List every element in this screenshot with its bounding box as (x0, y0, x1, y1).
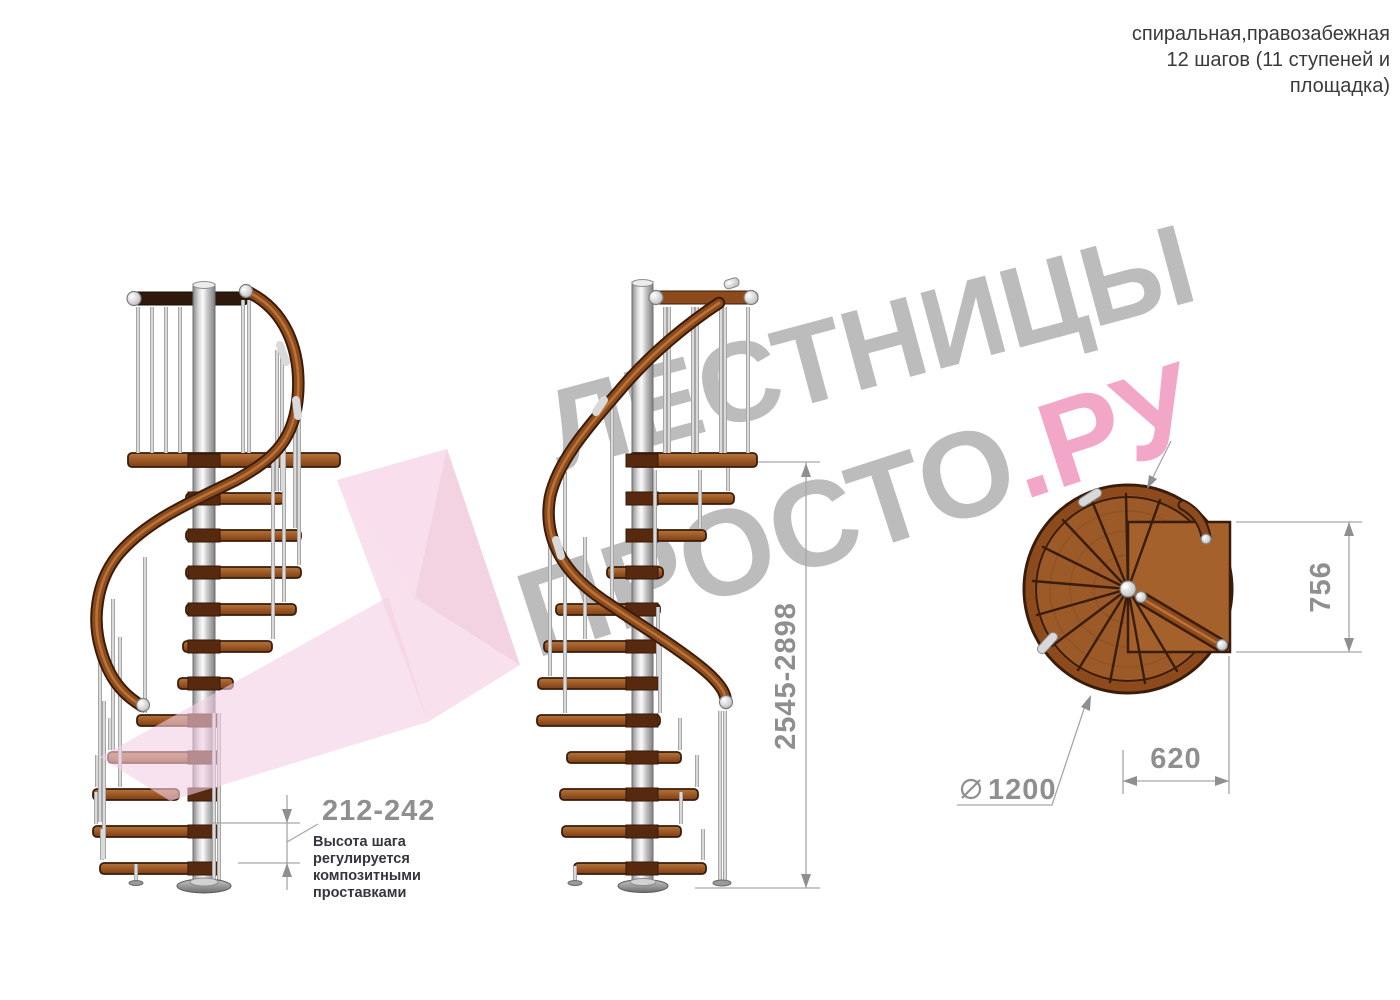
step-height-value: 212-242 (322, 795, 435, 827)
title-block: спиральная,правозабежная 12 шагов (11 ст… (1132, 23, 1390, 97)
watermark-arrow (100, 449, 520, 801)
dimension-landing-depth: 756 (1236, 522, 1362, 652)
title-line-1: спиральная,правозабежная (1132, 23, 1390, 45)
total-height-value: 2545-2898 (770, 602, 802, 750)
staircase-technical-drawing: ЛЕСТНИЦЫ ПРОСТО.РУ (0, 0, 1400, 1000)
guard-rail (128, 292, 249, 305)
staircase-top-view (1024, 485, 1232, 693)
dimension-step-height: 212-242 Высота шага регулируется компози… (212, 795, 435, 901)
diameter-icon (962, 780, 980, 798)
title-line-3: площадка) (1290, 75, 1390, 97)
staircase-side-view-left (93, 282, 340, 894)
step-height-note-3: композитными (313, 868, 421, 884)
title-line-2: 12 шагов (11 ступеней и (1166, 49, 1390, 71)
step-height-note-4: проставками (313, 885, 406, 901)
diameter-value: 1200 (988, 774, 1057, 806)
center-pole-hub (1120, 581, 1136, 597)
landing-width-value: 620 (1150, 743, 1201, 775)
landing-platform (1128, 522, 1230, 652)
step-height-note-2: регулируется (313, 851, 410, 867)
guard-rail (650, 291, 758, 304)
landing-depth-value: 756 (1305, 561, 1337, 612)
drawing-canvas: ЛЕСТНИЦЫ ПРОСТО.РУ (0, 0, 1400, 1000)
step-height-note-1: Высота шага (313, 834, 407, 850)
dimension-diameter: 1200 (957, 695, 1091, 806)
